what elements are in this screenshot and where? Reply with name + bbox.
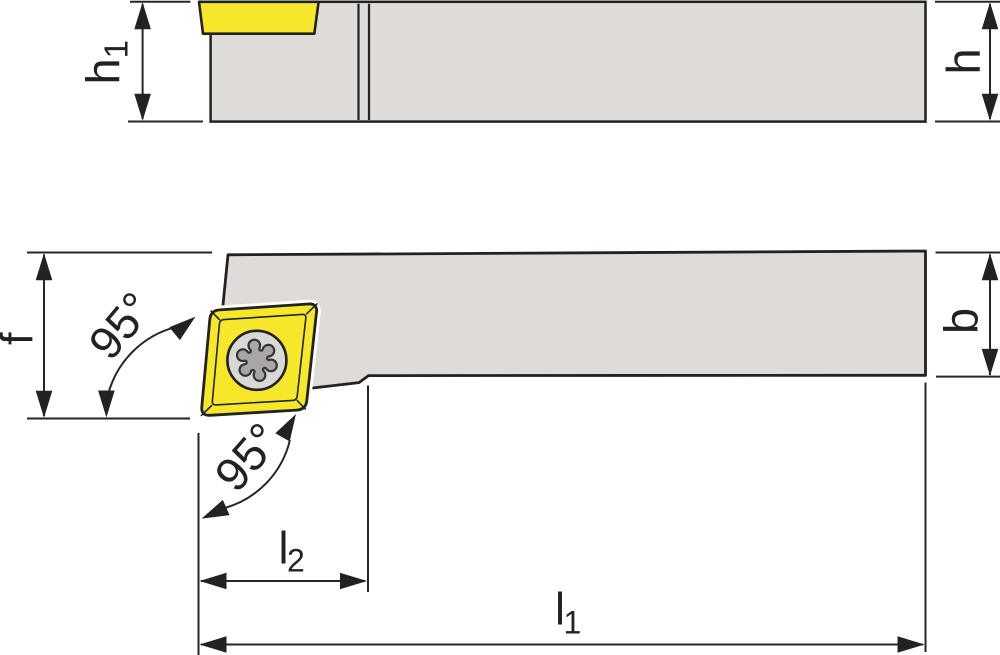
svg-text:2: 2 — [287, 542, 305, 578]
svg-text:1: 1 — [564, 605, 582, 641]
svg-text:f: f — [0, 332, 43, 345]
svg-text:b: b — [935, 308, 988, 334]
svg-text:h: h — [937, 48, 990, 74]
